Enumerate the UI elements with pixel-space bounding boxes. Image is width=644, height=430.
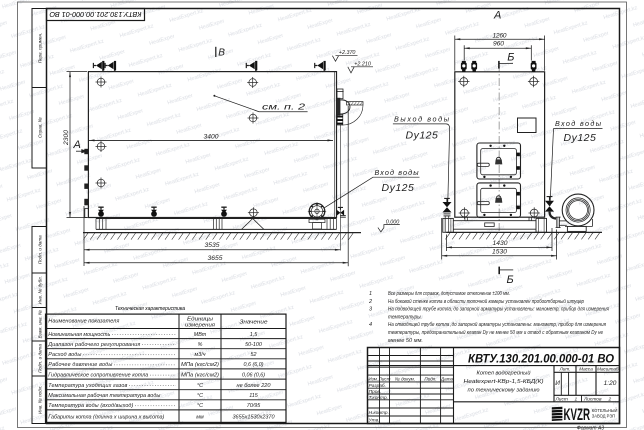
svg-text:Формат А3: Формат А3 [577, 425, 605, 430]
svg-text:Dy125: Dy125 [564, 132, 597, 144]
svg-text:Перв. примен.: Перв. примен. [38, 33, 43, 64]
svg-text:Лист: Лист [555, 396, 568, 402]
svg-text:КВТУ.130.201.00.000-01 ВО: КВТУ.130.201.00.000-01 ВО [468, 351, 615, 365]
svg-text:Б: Б [507, 51, 514, 63]
svg-text:Лист: Лист [378, 376, 391, 381]
svg-text:Вход воды: Вход воды [375, 168, 420, 177]
svg-text:Гидравлическое сопротивление к: Гидравлическое сопротивление котла [48, 372, 148, 378]
svg-text:%: % [198, 342, 203, 348]
svg-text:На отводящей трубе котла ,до з: На отводящей трубе котла ,до запорной ар… [388, 321, 606, 328]
svg-text:0,06 (0,6): 0,06 (0,6) [242, 372, 265, 378]
svg-text:В: В [218, 47, 225, 58]
svg-text:2: 2 [368, 299, 372, 305]
svg-text:Б: Б [507, 274, 514, 286]
svg-text:1,5: 1,5 [250, 332, 258, 338]
svg-text:Пров.: Пров. [369, 389, 382, 395]
svg-text:4: 4 [369, 322, 372, 328]
svg-text:МПа (кгс/см2): МПа (кгс/см2) [181, 362, 219, 368]
svg-text:Дата: Дата [440, 376, 454, 381]
svg-text:КОТЕЛЬНЫЙ: КОТЕЛЬНЫЙ [592, 408, 618, 413]
svg-text:А: А [73, 139, 82, 151]
svg-text:м3/ч: м3/ч [195, 352, 206, 358]
svg-text:Dy125: Dy125 [406, 130, 439, 142]
svg-text:ЗАВОД РЭП: ЗАВОД РЭП [592, 414, 615, 419]
svg-text:Справ. №: Справ. № [38, 117, 43, 138]
svg-text:Температура воды (вход/выход): Температура воды (вход/выход) [48, 403, 133, 409]
svg-text:1: 1 [369, 291, 372, 297]
svg-text:менее 50 мм.: менее 50 мм. [388, 338, 423, 344]
svg-text:0,6 (6,0): 0,6 (6,0) [243, 362, 263, 368]
svg-text:КВТУ.130.201.00.000-01 ВО: КВТУ.130.201.00.000-01 ВО [49, 10, 141, 19]
svg-text:Техническая характеристика: Техническая характеристика [115, 306, 186, 312]
svg-text:Масштаб: Масштаб [597, 367, 619, 372]
svg-text:960: 960 [493, 41, 504, 48]
svg-text:°С: °С [197, 383, 203, 389]
svg-text:Наименование показателя: Наименование показателя [48, 319, 119, 325]
svg-text:3655: 3655 [208, 255, 223, 262]
svg-text:1:20: 1:20 [604, 380, 617, 387]
svg-text:см. п. 2: см. п. 2 [262, 103, 306, 112]
svg-text:Листов: Листов [583, 396, 602, 402]
svg-text:Расход воды: Расход воды [48, 352, 81, 358]
svg-text:0.000: 0.000 [386, 219, 400, 225]
svg-text:На подводящей трубе котла, до: На подводящей трубе котла, до запорной а… [388, 306, 609, 313]
svg-text:KVZR: KVZR [564, 406, 591, 424]
svg-text:Т.контр.: Т.контр. [369, 395, 388, 401]
svg-text:115: 115 [249, 393, 259, 399]
svg-text:Номинальная мощность: Номинальная мощность [48, 332, 110, 338]
svg-text:Все размеры для справок, допус: Все размеры для справок, допустимое откл… [388, 291, 510, 297]
svg-text:Значение: Значение [240, 320, 268, 326]
svg-text:И: И [555, 380, 560, 387]
svg-text:+2.370: +2.370 [339, 50, 356, 56]
svg-text:температуры, предохранительный: температуры, предохранительный клапан Dy… [388, 329, 603, 336]
svg-text:Подп. и дата: Подп. и дата [38, 235, 43, 264]
svg-text:2300: 2300 [63, 130, 70, 146]
svg-text:1260: 1260 [493, 32, 507, 39]
svg-text:Температура уходящих газов: Температура уходящих газов [48, 383, 127, 389]
svg-text:Взам. инв. №: Взам. инв. № [38, 310, 43, 338]
svg-text:На боковой стенке котла в обла: На боковой стенке котла в области топочн… [388, 298, 584, 305]
svg-text:Масса: Масса [579, 367, 593, 372]
svg-text:Лит.: Лит. [559, 367, 571, 372]
svg-text:52: 52 [251, 352, 257, 358]
svg-text:измерения: измерения [185, 323, 215, 329]
svg-text:Heatexpert-КВр-1,5-КБД(К): Heatexpert-КВр-1,5-КБД(К) [464, 379, 544, 385]
svg-text:Максимальная рабочая температу: Максимальная рабочая температура воды [48, 393, 160, 399]
svg-text:не более 220: не более 220 [237, 383, 271, 389]
svg-text:Утв.: Утв. [369, 417, 380, 423]
svg-text:50-100: 50-100 [245, 342, 262, 348]
svg-text:°С: °С [197, 403, 203, 409]
svg-text:1430: 1430 [493, 240, 508, 247]
svg-text:Котел водогрейный: Котел водогрейный [477, 369, 532, 376]
svg-text:Рабочее давление воды: Рабочее давление воды [48, 362, 112, 368]
svg-text:3535: 3535 [205, 242, 220, 249]
svg-text:Н.контр.: Н.контр. [369, 410, 389, 416]
svg-text:Выход воды: Выход воды [394, 115, 450, 124]
svg-text:Подп. и дата: Подп. и дата [38, 344, 43, 373]
svg-text:3655х1530х2370: 3655х1530х2370 [233, 414, 275, 420]
svg-text:Инв. № подл.: Инв. № подл. [38, 385, 43, 414]
svg-text:№ докум.: № докум. [395, 376, 415, 381]
svg-text:3400: 3400 [204, 133, 219, 140]
svg-text:°С: °С [197, 393, 203, 399]
svg-text:Изм.: Изм. [368, 376, 378, 381]
svg-text:Инв. № дубл.: Инв. № дубл. [38, 276, 43, 304]
svg-text:+2.210: +2.210 [354, 61, 371, 67]
svg-text:70/95: 70/95 [247, 403, 261, 409]
svg-text:Dy125: Dy125 [382, 182, 415, 194]
svg-text:Диапазон рабочего регулировани: Диапазон рабочего регулирования [47, 342, 140, 348]
svg-text:МВт: МВт [194, 332, 207, 338]
svg-text:Разраб.: Разраб. [369, 383, 386, 389]
svg-text:1: 1 [575, 396, 578, 402]
svg-text:МПа (кгс/см2): МПа (кгс/см2) [181, 372, 219, 378]
svg-text:по техническому заданию: по техническому заданию [468, 387, 541, 393]
svg-text:мм: мм [196, 414, 204, 420]
svg-text:Габариты котла (длинна х ширин: Габариты котла (длинна х ширина х высота… [48, 414, 164, 420]
svg-text:1530: 1530 [492, 248, 507, 255]
svg-text:А: А [493, 9, 501, 21]
svg-text:2: 2 [608, 396, 612, 402]
svg-text:Подп.: Подп. [424, 376, 436, 381]
svg-text:температуры.: температуры. [388, 314, 422, 320]
